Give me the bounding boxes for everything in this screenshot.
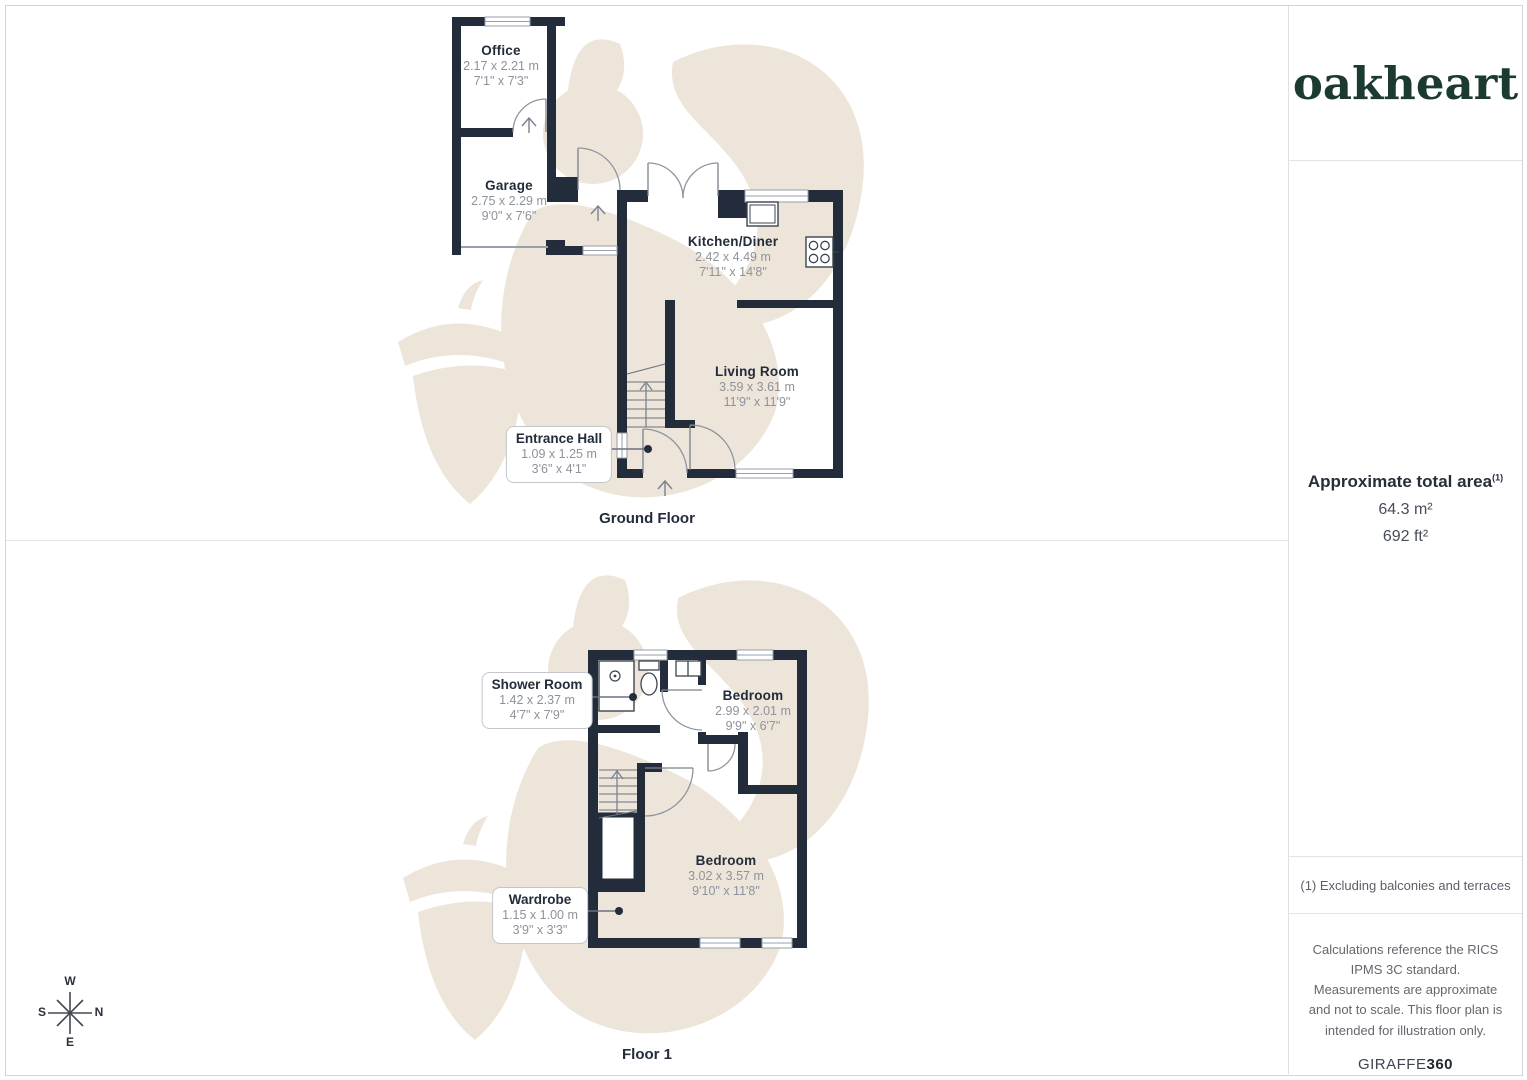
room-label-living-room: Living Room 3.59 x 3.61 m 11'9" x 11'9" — [715, 364, 799, 410]
giraffe360-logo: GIRAFFE360 — [1358, 1056, 1453, 1073]
compass-label-top: W — [64, 974, 75, 988]
watermark-ground-floor — [398, 39, 864, 504]
shower-icon — [599, 661, 634, 711]
callout-shower-room: Shower Room 1.42 x 2.37 m 4'7" x 7'9" — [482, 672, 593, 729]
caption-ground-floor: Ground Floor — [599, 510, 695, 527]
oakheart-logo: oakheart — [1293, 57, 1518, 110]
logo-section: oakheart — [1289, 6, 1522, 161]
footnote-text: (1) Excluding balconies and terraces — [1289, 856, 1522, 914]
room-label-garage: Garage 2.75 x 2.29 m 9'0" x 7'6" — [471, 178, 547, 224]
room-label-office: Office 2.17 x 2.21 m 7'1" x 7'3" — [463, 43, 539, 89]
room-label-bedroom-1: Bedroom 2.99 x 2.01 m 9'9" x 6'7" — [715, 688, 791, 734]
floor-1-closet — [600, 815, 636, 881]
compass-label-left: S — [38, 1005, 46, 1019]
total-area-m2: 64.3 m² — [1378, 501, 1432, 519]
disclaimer-text: Calculations reference the RICS IPMS 3C … — [1308, 940, 1504, 1041]
total-area-title: Approximate total area(1) — [1308, 472, 1503, 492]
compass-label-bottom: E — [66, 1035, 74, 1049]
compass-label-right: N — [95, 1005, 104, 1019]
total-area-section: Approximate total area(1) 64.3 m² 692 ft… — [1289, 161, 1522, 856]
total-area-ft2: 692 ft² — [1383, 528, 1428, 546]
caption-floor-1: Floor 1 — [622, 1046, 672, 1063]
room-label-kitchen-diner: Kitchen/Diner 2.42 x 4.49 m 7'11" x 14'8… — [688, 234, 778, 280]
disclaimer-section: Calculations reference the RICS IPMS 3C … — [1289, 914, 1522, 1074]
room-label-bedroom-2: Bedroom 3.02 x 3.57 m 9'10" x 11'8" — [688, 853, 764, 899]
basin-icon — [676, 661, 701, 676]
info-sidebar: oakheart Approximate total area(1) 64.3 … — [1288, 6, 1522, 1074]
kitchen-sink-icon — [747, 202, 778, 226]
toilet-icon — [639, 661, 659, 695]
compass-rose-icon — [48, 992, 92, 1034]
callout-wardrobe: Wardrobe 1.15 x 1.00 m 3'9" x 3'3" — [492, 887, 588, 944]
callout-entrance-hall: Entrance Hall 1.09 x 1.25 m 3'6" x 4'1" — [506, 426, 612, 483]
area-footnote-marker: (1) — [1492, 472, 1503, 482]
